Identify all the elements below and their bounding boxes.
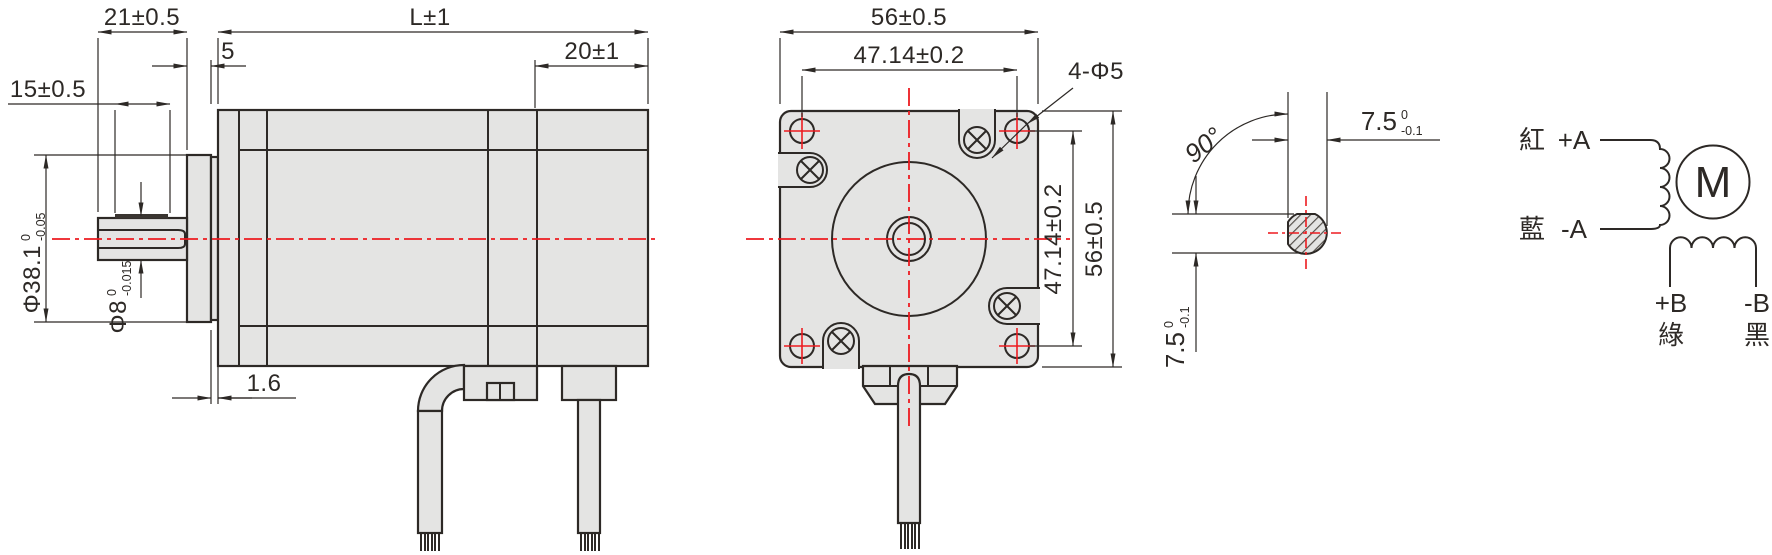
svg-text:7.5: 7.5 (1361, 106, 1397, 136)
lead-a-plus: +A (1558, 125, 1591, 155)
wire-color-black: 黑 (1744, 320, 1770, 350)
motor-body (218, 110, 648, 366)
wire-strands (421, 533, 439, 551)
dim-flat-length: 15±0.5 (10, 76, 86, 103)
svg-text:0: 0 (105, 289, 119, 296)
front-cable-exit (863, 366, 957, 549)
svg-text:-0.1: -0.1 (1178, 306, 1192, 328)
lead-wire-straight (562, 366, 616, 551)
dim-angle: 90° (1179, 121, 1228, 169)
motor-dimension-drawing: 21±0.5 L±1 5 20±1 15±0.5 Φ38.1 0 -0 (0, 0, 1772, 555)
svg-text:-0.015: -0.015 (120, 261, 134, 296)
svg-text:0: 0 (1401, 108, 1408, 122)
svg-text:7.5: 7.5 (1160, 332, 1190, 368)
dim-hole-spacing-v: 47.14±0.2 (1040, 183, 1067, 294)
lead-a-minus: -A (1561, 214, 1588, 244)
lead-wire-elbow (418, 365, 537, 551)
phase-a-coil (1600, 140, 1670, 229)
wire-color-green: 綠 (1658, 320, 1684, 350)
dim-height: 56±0.5 (1081, 201, 1108, 277)
motor-symbol: M (1695, 158, 1732, 207)
svg-text:Φ38.1: Φ38.1 (19, 245, 46, 313)
shaft-section-shape (1288, 214, 1327, 254)
label-mounting-holes: 4-Φ5 (1068, 58, 1124, 85)
dim-width: 56±0.5 (871, 4, 947, 31)
dim-front-step: 5 (221, 38, 235, 65)
dim-rear-section: 20±1 (564, 38, 619, 65)
svg-text:-0.1: -0.1 (1401, 124, 1423, 138)
wire-strands (901, 523, 919, 549)
phase-b-coil (1670, 237, 1756, 287)
svg-text:0: 0 (19, 234, 33, 241)
shaft-section-view: 7.5 0 -0.1 7.5 0 -0.1 90° (1160, 92, 1440, 368)
technical-drawing-canvas: 21±0.5 L±1 5 20±1 15±0.5 Φ38.1 0 -0 (0, 0, 1772, 555)
lead-b-minus: -B (1744, 288, 1770, 318)
dim-hole-spacing-h: 47.14±0.2 (853, 42, 964, 69)
side-view: 21±0.5 L±1 5 20±1 15±0.5 Φ38.1 0 -0 (8, 4, 658, 551)
wiring-diagram: 紅 +A 藍 -A M +B -B 綠 黑 (1519, 125, 1770, 350)
lead-b-plus: +B (1655, 288, 1688, 318)
wire-color-red: 紅 (1519, 125, 1545, 155)
svg-text:0: 0 (1162, 321, 1176, 328)
dim-shaft-diameter: Φ8 0 -0.015 (105, 261, 134, 334)
dim-flat-height: 7.5 0 -0.1 (1160, 306, 1192, 368)
wire-color-blue: 藍 (1519, 214, 1545, 244)
wire-strands (581, 533, 599, 551)
dim-body-length: L±1 (409, 4, 450, 31)
dim-boss-height: 1.6 (247, 370, 282, 397)
svg-text:Φ8: Φ8 (105, 300, 132, 334)
svg-text:-0.05: -0.05 (34, 212, 48, 241)
front-view: 56±0.5 47.14±0.2 4-Φ5 47.14±0.2 56±0.5 (746, 4, 1124, 549)
dim-shaft-length: 21±0.5 (104, 4, 180, 31)
dim-flat-width: 7.5 0 -0.1 (1361, 106, 1423, 138)
dim-pilot-diameter: Φ38.1 0 -0.05 (19, 212, 48, 313)
